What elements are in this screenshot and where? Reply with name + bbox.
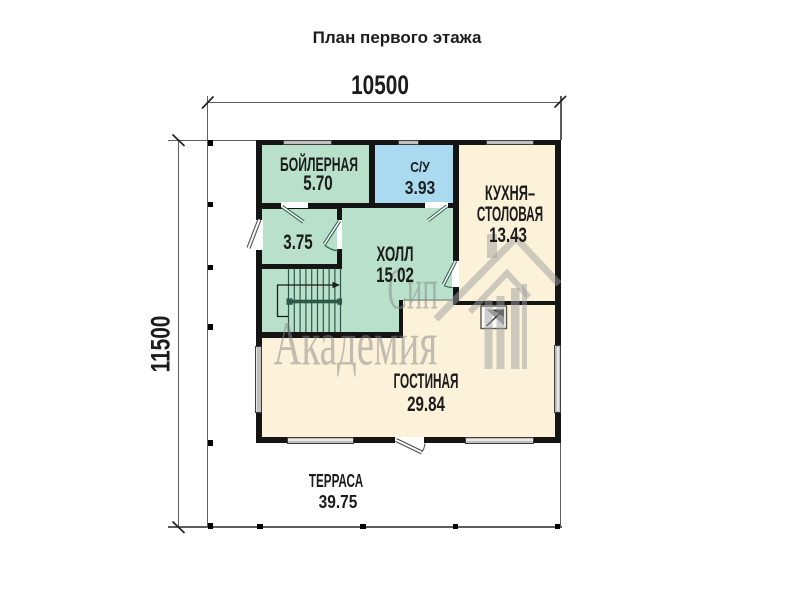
svg-text:Академия: Академия [274,311,438,379]
